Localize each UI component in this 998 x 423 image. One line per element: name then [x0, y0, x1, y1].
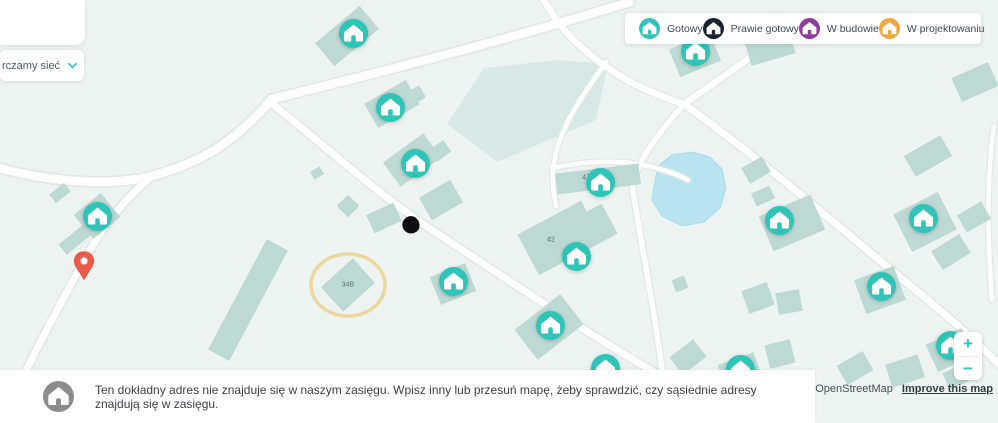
legend-item-gotowy: Gotowy [639, 18, 703, 39]
map-marker-gotowy[interactable] [765, 206, 794, 235]
coverage-notice-bar: Ten dokładny adres nie znajduje się w na… [0, 370, 815, 423]
map-canvas[interactable] [0, 0, 998, 423]
zoom-in-button[interactable]: + [954, 332, 982, 356]
search-panel-fragment [0, 0, 85, 45]
pond [652, 152, 726, 226]
coverage-notice-text: Ten dokładny adres nie znajduje się w na… [95, 383, 757, 411]
map-marker-gotowy[interactable] [376, 93, 405, 122]
improve-map-link[interactable]: Improve this map [902, 383, 993, 395]
notice-line-1: Ten dokładny adres nie znajduje się w na… [95, 383, 757, 397]
home-icon [879, 18, 900, 39]
status-legend: GotowyPrawie gotowyW budowieW projektowa… [625, 13, 981, 44]
field-area [447, 60, 608, 162]
map-marker-gotowy[interactable] [83, 202, 112, 231]
location-pin [71, 249, 97, 282]
map-marker-gotowy[interactable] [867, 272, 896, 301]
building-number-label: 42 [547, 237, 555, 244]
home-icon [799, 18, 820, 39]
legend-item-prawie-gotowy: Prawie gotowy [703, 18, 799, 39]
zoom-out-button[interactable]: − [954, 357, 982, 381]
building-number-label: 34B [342, 282, 354, 289]
map-marker-gotowy[interactable] [562, 242, 591, 271]
map-marker-gotowy[interactable] [439, 267, 468, 296]
map-marker-gotowy[interactable] [536, 311, 565, 340]
home-icon [43, 381, 74, 412]
home-icon [639, 18, 660, 39]
road-casings [0, 0, 998, 400]
legend-item-w-projektowaniu: W projektowaniu [879, 18, 985, 39]
roads [0, 0, 998, 400]
buildings [49, 6, 998, 390]
coverage-dropdown-label: rczamy sieć [2, 60, 60, 72]
map-zoom-controls: + − [954, 332, 982, 380]
legend-item-w-budowie: W budowie [799, 18, 879, 39]
map-marker-gotowy[interactable] [401, 149, 430, 178]
map-marker-gotowy[interactable] [339, 19, 368, 48]
map-marker-gotowy[interactable] [909, 204, 938, 233]
coverage-dropdown[interactable]: rczamy sieć [0, 50, 84, 81]
legend-label: W budowie [827, 23, 879, 35]
notice-line-2: znajdują się w zasięgu. [95, 397, 757, 411]
coverage-map-page: { "legend": { "items": [ {"status": "got… [0, 0, 998, 423]
home-icon [703, 18, 724, 39]
chevron-down-icon [65, 58, 80, 73]
map-marker-gotowy[interactable] [586, 168, 615, 197]
legend-label: Prawie gotowy [731, 23, 799, 35]
legend-label: W projektowaniu [907, 23, 985, 35]
legend-label: Gotowy [667, 23, 703, 35]
